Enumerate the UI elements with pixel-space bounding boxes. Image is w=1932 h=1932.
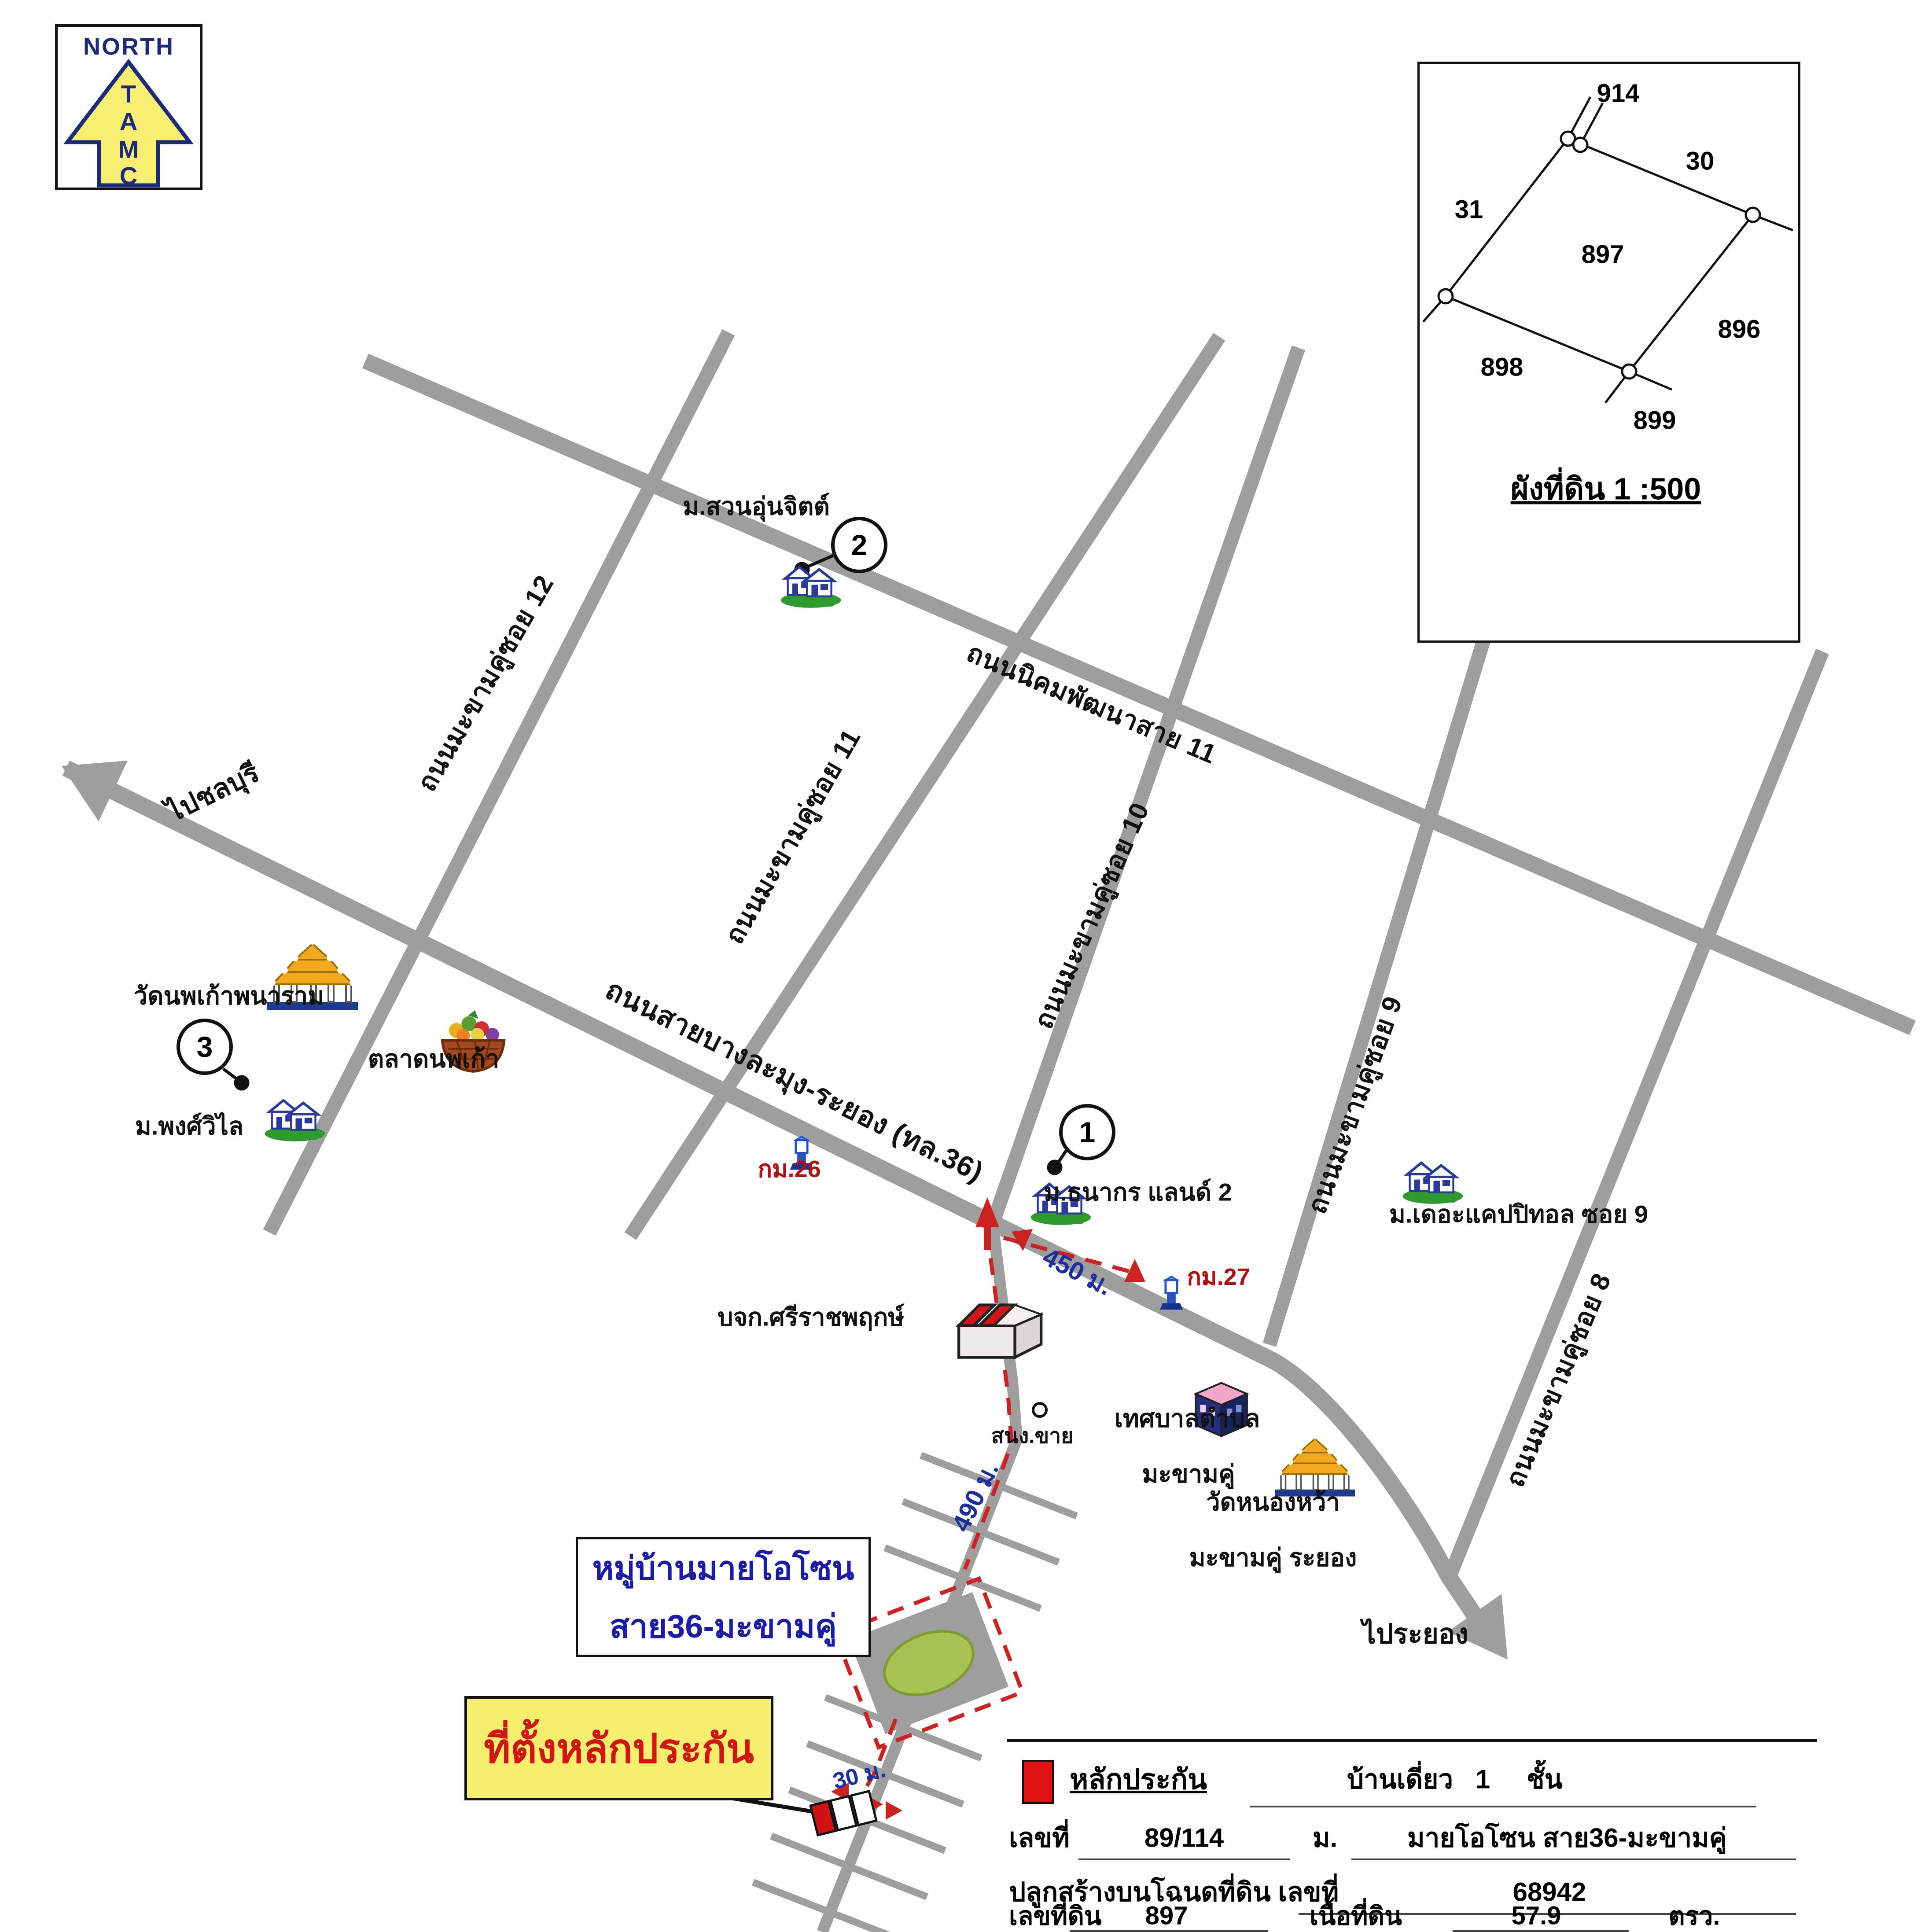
plot-diagram-title: ผังที่ดิน 1 :500 xyxy=(1511,464,1701,513)
table-underline-area xyxy=(1453,1930,1629,1932)
poi-label-phongwilai: ม.พงศ์วิไล xyxy=(135,1107,243,1146)
km27-label: กม.27 xyxy=(1187,1258,1250,1295)
north-compass-logo: NORTH T A M C xyxy=(55,24,202,190)
poi-marker-3: 3 xyxy=(177,1019,233,1075)
poi-label-wat-noppakao: วัดนพเก้าพนาราม xyxy=(134,976,324,1016)
table-underline-land-no xyxy=(1070,1930,1268,1932)
plot-num-914: 914 xyxy=(1597,79,1640,108)
plot-num-30: 30 xyxy=(1686,147,1715,176)
table-legend-label: หลักประกัน xyxy=(1070,1757,1207,1802)
table-no-value: 89/114 xyxy=(1144,1823,1224,1853)
direction-label-rayong: ไประยอง xyxy=(1362,1612,1468,1656)
km26-label: กม.26 xyxy=(758,1150,821,1188)
collateral-site-label: ที่ตั้งหลักประกัน xyxy=(484,1716,754,1781)
road-soi-12 xyxy=(269,332,729,1233)
road-soi-11 xyxy=(630,337,1219,1236)
village-name-line1: หมู่บ้านมายโอโซน xyxy=(592,1542,854,1594)
table-no-label: เลขที่ xyxy=(1009,1817,1070,1859)
table-underline-r1 xyxy=(1250,1806,1756,1807)
table-area-value: 57.9 xyxy=(1512,1901,1561,1931)
tamc-letter-m: M xyxy=(118,135,139,164)
plot-num-897: 897 xyxy=(1582,240,1624,269)
table-top-border xyxy=(1007,1739,1817,1742)
table-land-no-label: เลขที่ดิน xyxy=(1009,1895,1102,1932)
plot-num-31: 31 xyxy=(1455,195,1483,224)
table-floor-unit: ชั้น xyxy=(1527,1759,1563,1800)
tamc-letter-c: C xyxy=(120,162,137,190)
poi-label-wat-nongwa-2: มะขามคู่ ระยอง xyxy=(1189,1538,1357,1577)
poi-label-wat-nongwa-1: วัดหนองหว้า xyxy=(1206,1483,1340,1522)
poi-label-capitol: ม.เดอะแคปปิทอล ซอย 9 xyxy=(1389,1195,1648,1234)
road-soi-9 xyxy=(1270,612,1492,1345)
table-underline-moo xyxy=(1351,1858,1796,1860)
table-area-unit: ตรว. xyxy=(1668,1895,1720,1932)
poi-label-suan-unchit: ม.สวนอุ่นจิตต์ xyxy=(683,487,830,526)
poi-marker-1: 1 xyxy=(1059,1104,1115,1160)
poi-label-thanakorn: ม.ธนากร แลนด์ 2 xyxy=(1044,1173,1232,1212)
collateral-site-box: ที่ตั้งหลักประกัน xyxy=(464,1696,773,1800)
land-plot-inset: 914 30 31 897 896 898 899 ผังที่ดิน 1 :5… xyxy=(1417,62,1800,643)
table-house-type: บ้านเดี่ยว xyxy=(1347,1759,1453,1800)
table-land-no-value: 897 xyxy=(1145,1901,1188,1931)
poi-label-sales-office: สนง.ขาย xyxy=(991,1419,1074,1453)
table-floors: 1 xyxy=(1476,1764,1490,1795)
table-area-label: เนื้อที่ดิน xyxy=(1310,1895,1402,1932)
tamc-letter-t: T xyxy=(121,80,136,108)
village-name-line2: สาย36-มะขามคู่ xyxy=(610,1600,837,1652)
sales-office-dot xyxy=(1033,1403,1046,1417)
table-moo-label: ม. xyxy=(1313,1817,1337,1859)
tamc-letter-a: A xyxy=(120,107,137,136)
poi-label-sriracha: บจก.ศรีราชพฤกษ์ xyxy=(718,1298,905,1337)
poi-label-talad-noppakao: ตลาดนพเก้า xyxy=(368,1039,499,1078)
plot-diagram xyxy=(1420,64,1798,640)
north-label: NORTH xyxy=(83,33,174,60)
table-underline-no xyxy=(1078,1858,1290,1860)
road-soi-10 xyxy=(993,348,1299,1224)
poi-label-tessaban-1: เทศบาลตำบล xyxy=(1115,1399,1260,1438)
plot-num-896: 896 xyxy=(1718,315,1761,344)
poi-marker-2: 2 xyxy=(831,517,887,573)
village-callout-box: หมู่บ้านมายโอโซน สาย36-มะขามคู่ xyxy=(576,1537,871,1657)
plot-num-899: 899 xyxy=(1634,406,1676,435)
table-moo-value: มายโอโซน สาย36-มะขามคู่ xyxy=(1407,1817,1727,1859)
legend-swatch xyxy=(1022,1760,1054,1804)
map-page: NORTH T A M C 914 30 xyxy=(0,0,1932,1932)
road-soi-8 xyxy=(1451,651,1822,1572)
plot-num-898: 898 xyxy=(1481,353,1524,382)
